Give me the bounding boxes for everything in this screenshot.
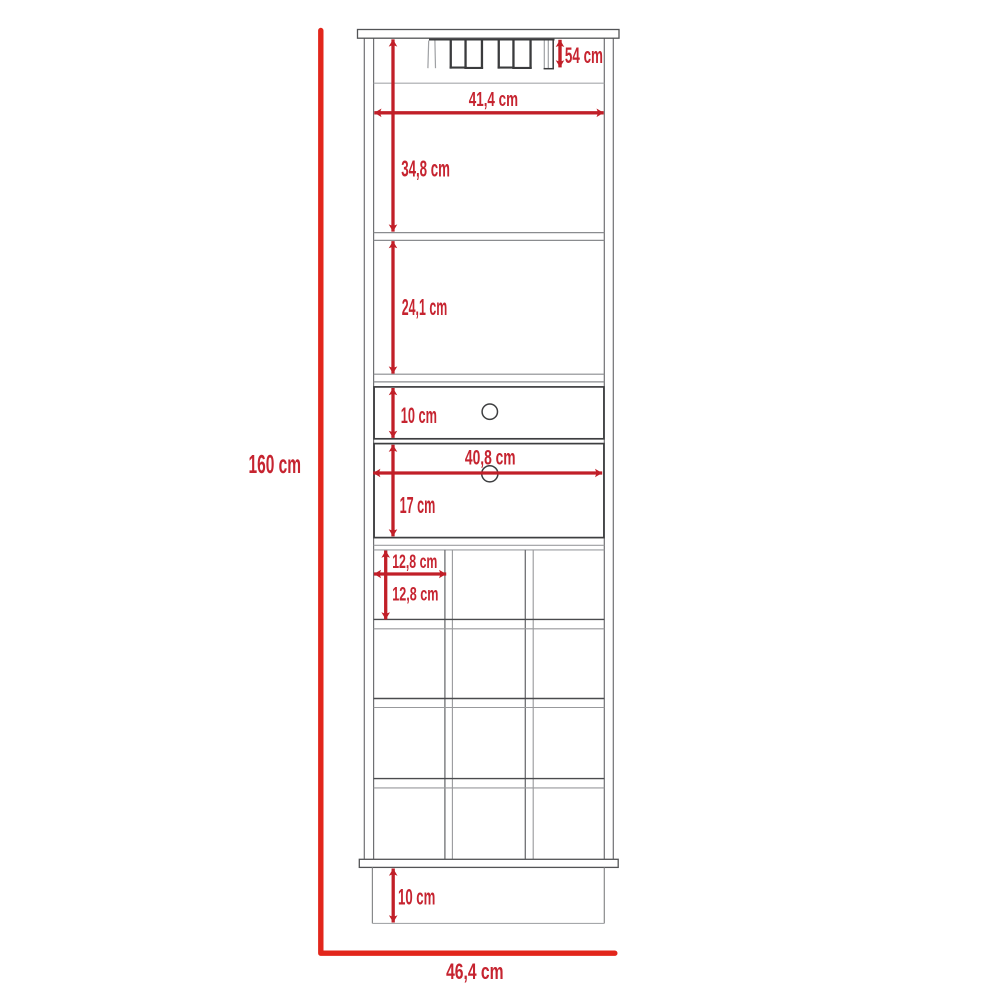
svg-text:12,8 cm: 12,8 cm (392, 584, 438, 605)
svg-text:40,8 cm: 40,8 cm (465, 445, 516, 470)
svg-text:12,8 cm: 12,8 cm (392, 552, 437, 573)
svg-text:34,8 cm: 34,8 cm (401, 156, 450, 182)
svg-text:160 cm: 160 cm (249, 451, 302, 479)
svg-text:24,1 cm: 24,1 cm (402, 294, 447, 320)
svg-text:46,4 cm: 46,4 cm (446, 959, 503, 984)
svg-text:17 cm: 17 cm (400, 492, 436, 518)
svg-text:10 cm: 10 cm (398, 885, 435, 910)
svg-text:10 cm: 10 cm (401, 403, 437, 428)
svg-text:54 cm: 54 cm (565, 43, 603, 68)
svg-text:41,4 cm: 41,4 cm (469, 89, 518, 111)
